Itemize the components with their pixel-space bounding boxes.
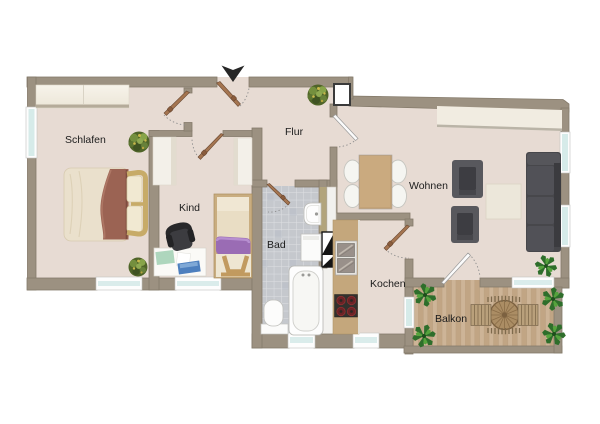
svg-text:Wohnen: Wohnen — [409, 180, 448, 192]
svg-text:Bad: Bad — [267, 239, 286, 251]
svg-text:Schlafen: Schlafen — [65, 134, 106, 146]
svg-text:Kind: Kind — [179, 202, 200, 214]
svg-text:Flur: Flur — [285, 126, 304, 138]
svg-text:Balkon: Balkon — [435, 313, 467, 325]
svg-text:Kochen: Kochen — [370, 278, 406, 290]
